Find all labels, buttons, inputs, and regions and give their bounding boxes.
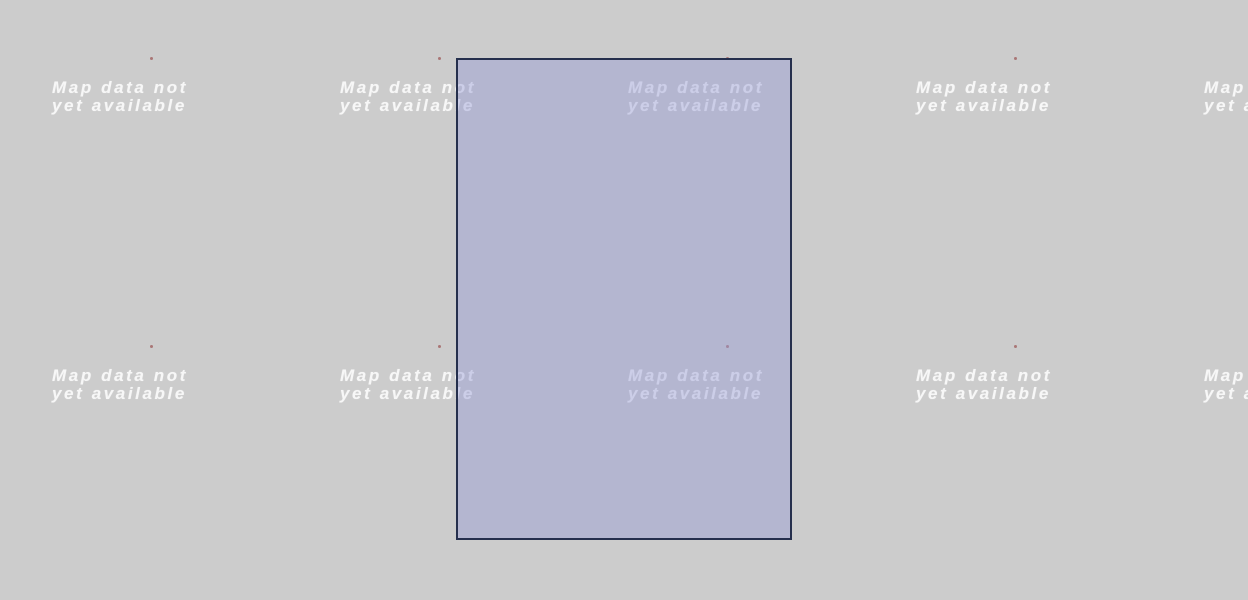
map-tile-placeholder: Map data not yet available [1204,79,1248,114]
map-tile-placeholder: Map data not yet available [52,79,188,114]
tile-marker-dot [438,345,441,348]
tile-placeholder-line2: yet available [52,97,188,115]
tile-placeholder-line1: Map data not [52,367,188,385]
tile-placeholder-line1: Map data not [916,79,1052,97]
map-tile-placeholder: Map data not yet available [1204,367,1248,402]
tile-marker-dot [1014,345,1017,348]
tile-placeholder-line2: yet available [52,385,188,403]
tile-marker-dot [150,57,153,60]
zoom-selection-rectangle [456,58,792,540]
map-tile-placeholder: Map data not yet available [916,79,1052,114]
tile-placeholder-line1: Map data not [1204,367,1248,385]
tile-placeholder-line2: yet available [1204,97,1248,115]
map-tile-placeholder: Map data not yet available [52,367,188,402]
tile-placeholder-line2: yet available [916,97,1052,115]
map-tile-placeholder: Map data not yet available [916,367,1052,402]
tile-marker-dot [150,345,153,348]
tile-placeholder-line1: Map data not [1204,79,1248,97]
tile-placeholder-line1: Map data not [916,367,1052,385]
tile-marker-dot [438,57,441,60]
tile-placeholder-line2: yet available [1204,385,1248,403]
map-canvas[interactable]: Map data not yet available Map data not … [0,0,1248,600]
tile-placeholder-line2: yet available [916,385,1052,403]
tile-marker-dot [1014,57,1017,60]
tile-placeholder-line1: Map data not [52,79,188,97]
